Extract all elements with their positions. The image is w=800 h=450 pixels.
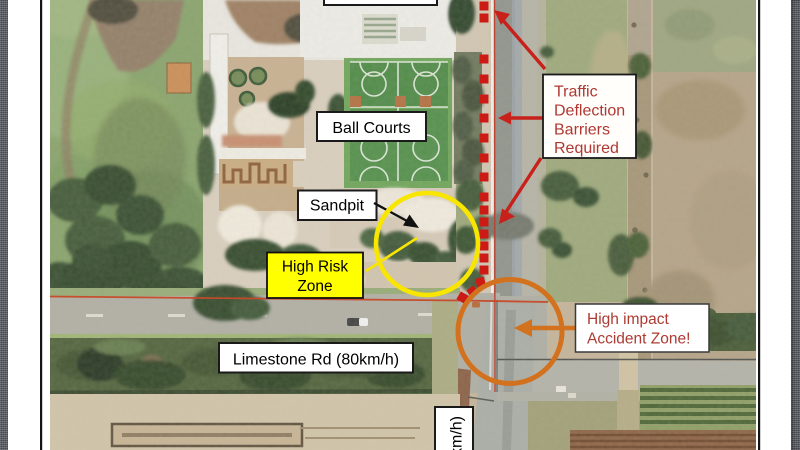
svg-text:High impact: High impact (587, 311, 670, 328)
svg-text:High Risk: High Risk (282, 259, 349, 276)
svg-text:Barriers: Barriers (554, 121, 610, 138)
svg-text:Required: Required (554, 140, 619, 157)
svg-text:Traffic: Traffic (554, 84, 598, 101)
svg-text:Accident Zone!: Accident Zone! (587, 330, 690, 347)
svg-text:Sandpit: Sandpit (310, 198, 365, 215)
svg-text:Rd (100km/h): Rd (100km/h) (449, 416, 466, 450)
svg-text:Zone: Zone (297, 278, 332, 295)
svg-text:Limestone Rd (80km/h): Limestone Rd (80km/h) (233, 352, 399, 369)
svg-text:Deflection: Deflection (554, 102, 625, 119)
svg-text:Ball Courts: Ball Courts (332, 120, 410, 137)
